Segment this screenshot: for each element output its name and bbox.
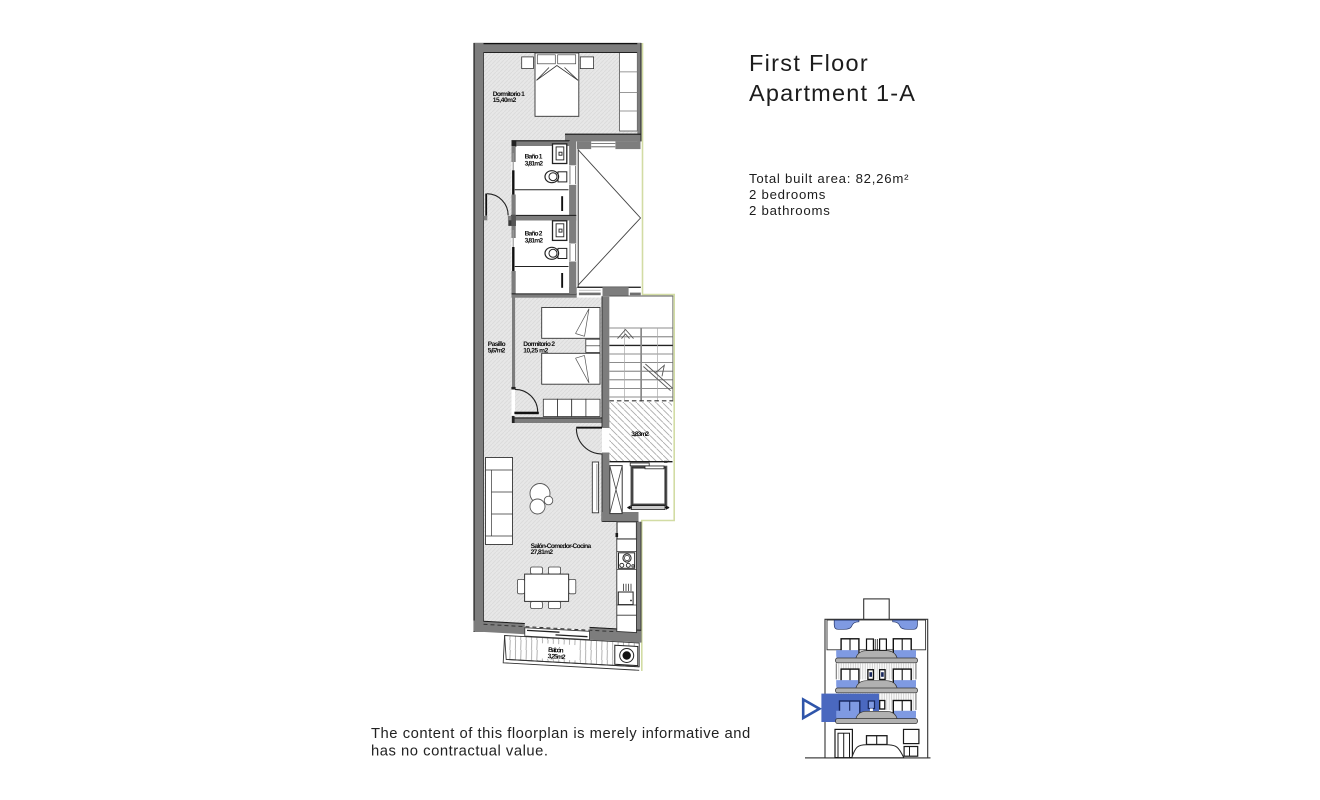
svg-text:has no contractual value.: has no contractual value. bbox=[371, 744, 549, 760]
svg-text:2 bathrooms: 2 bathrooms bbox=[749, 203, 831, 218]
svg-text:3,83m2: 3,83m2 bbox=[631, 431, 649, 438]
svg-text:10,25 m2: 10,25 m2 bbox=[523, 347, 548, 354]
svg-text:The content of this floorplan: The content of this floorplan is merely … bbox=[371, 726, 751, 742]
svg-text:2 bedrooms: 2 bedrooms bbox=[749, 187, 826, 202]
svg-text:5,67m2: 5,67m2 bbox=[488, 347, 506, 354]
svg-text:First Floor: First Floor bbox=[749, 50, 869, 76]
svg-text:3,81m2: 3,81m2 bbox=[525, 237, 544, 244]
svg-text:3,81m2: 3,81m2 bbox=[525, 160, 544, 167]
svg-text:Apartment 1-A: Apartment 1-A bbox=[749, 80, 916, 106]
svg-text:3,25m2: 3,25m2 bbox=[547, 653, 566, 661]
svg-text:Total built area: 82,26m²: Total built area: 82,26m² bbox=[749, 171, 909, 186]
svg-text:27,81m2: 27,81m2 bbox=[531, 549, 554, 556]
svg-text:15,40m2: 15,40m2 bbox=[493, 97, 517, 104]
